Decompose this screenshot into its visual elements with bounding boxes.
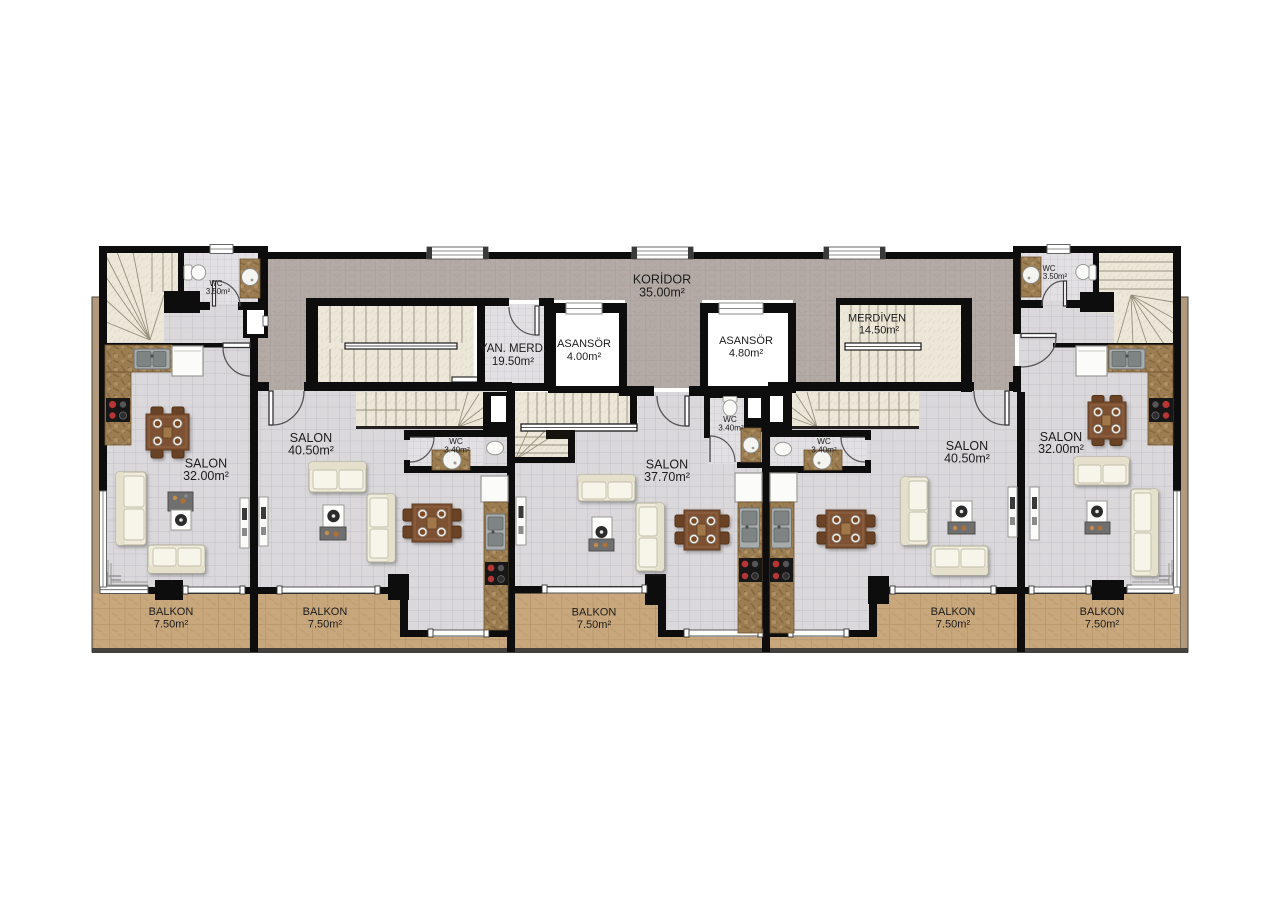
svg-text:7.50m²: 7.50m² [154,619,189,631]
svg-text:BALKON: BALKON [149,606,194,618]
svg-text:32.00m²: 32.00m² [183,469,229,483]
svg-text:ASANSÖR: ASANSÖR [719,335,773,347]
svg-text:37.70m²: 37.70m² [644,470,690,484]
svg-text:4.00m²: 4.00m² [567,351,602,363]
svg-text:7.50m²: 7.50m² [308,619,343,631]
svg-text:YAN. MERD.: YAN. MERD. [480,343,546,355]
svg-text:ASANSÖR: ASANSÖR [557,338,611,350]
svg-text:40.50m²: 40.50m² [288,444,334,458]
svg-text:7.50m²: 7.50m² [936,619,971,631]
svg-text:35.00m²: 35.00m² [639,286,685,300]
svg-text:7.50m²: 7.50m² [1085,619,1120,631]
svg-text:3.40m²: 3.40m² [811,446,837,455]
svg-text:KORİDOR: KORİDOR [633,273,691,287]
svg-text:BALKON: BALKON [1080,606,1125,618]
svg-text:3.40m²: 3.40m² [718,424,744,433]
svg-text:MERDİVEN: MERDİVEN [848,312,906,325]
svg-text:BALKON: BALKON [931,606,976,618]
svg-text:BALKON: BALKON [572,607,617,619]
svg-text:3.50m²: 3.50m² [206,287,231,296]
svg-text:32.00m²: 32.00m² [1038,442,1084,456]
svg-text:3.50m²: 3.50m² [1043,272,1068,281]
svg-text:19.50m²: 19.50m² [492,356,534,368]
svg-text:4.80m²: 4.80m² [729,348,764,360]
svg-text:7.50m²: 7.50m² [577,619,612,631]
svg-text:14.50m²: 14.50m² [859,325,900,337]
svg-text:BALKON: BALKON [303,606,348,618]
svg-text:3.40m²: 3.40m² [444,446,470,455]
svg-text:40.50m²: 40.50m² [944,452,990,466]
